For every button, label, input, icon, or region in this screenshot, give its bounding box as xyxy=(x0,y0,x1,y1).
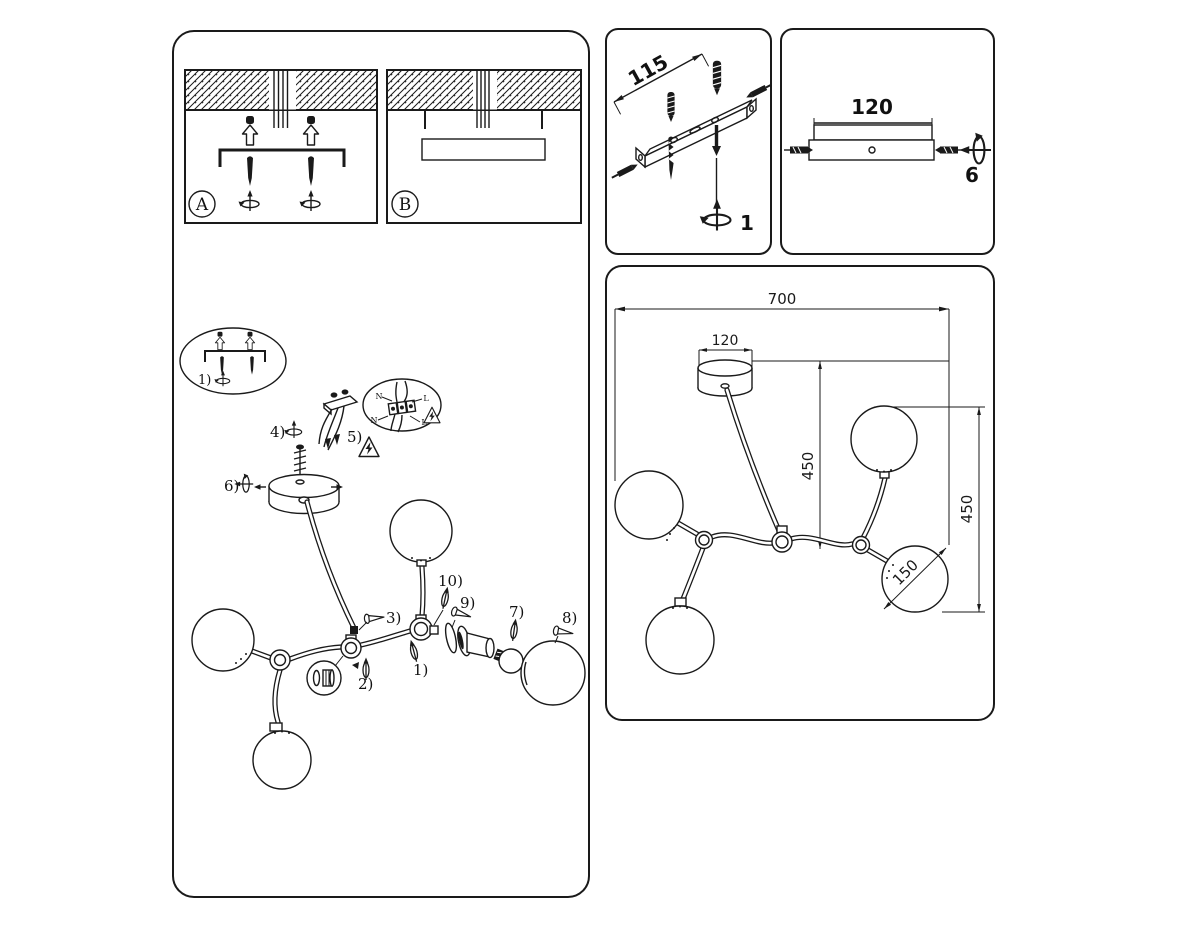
dimensions-drawing: 700 120 450 xyxy=(607,267,993,719)
screw-rotate-icon xyxy=(214,371,229,387)
screw-icon xyxy=(247,156,253,186)
detail-socket-insert xyxy=(307,656,343,695)
dim-120-label: 120 xyxy=(712,333,739,349)
screw-icon xyxy=(553,626,574,638)
wire xyxy=(391,414,395,431)
canopy-mounting-card: 120 xyxy=(780,28,995,255)
dim-450-right-label: 450 xyxy=(958,495,976,524)
bracket-drawing: 115 xyxy=(607,30,770,253)
mounting-bracket xyxy=(205,351,265,362)
bracket-mounting-card: 115 xyxy=(605,28,772,255)
screw-rotate-icon xyxy=(239,190,260,211)
neutral-label: N xyxy=(376,392,383,401)
dim-120-label: 120 xyxy=(851,95,893,119)
socket-disc xyxy=(443,622,458,653)
wall-plug-icon xyxy=(245,332,254,350)
dim-115-label: 115 xyxy=(624,50,672,91)
glass-globe xyxy=(646,606,714,674)
dimension-450-center: 450 xyxy=(799,361,822,549)
wall-plug-icon xyxy=(304,116,319,145)
canopy-side-view xyxy=(809,125,934,160)
screw-head-icon xyxy=(342,389,349,394)
side-screw xyxy=(745,82,770,100)
wall-plug-icon xyxy=(667,92,674,122)
screw-rotate-icon xyxy=(960,133,992,164)
step-1-label: 1) xyxy=(198,373,211,388)
wall-plug-icon xyxy=(215,332,224,350)
panel-a-label: A xyxy=(195,195,209,215)
live-label: L xyxy=(423,394,429,403)
step-10-label: 10) xyxy=(438,572,463,590)
dimension-115: 115 xyxy=(613,50,709,115)
panel-b-label: B xyxy=(399,195,412,215)
step-9-label: 9) xyxy=(460,594,475,612)
step-7-label: 7) xyxy=(509,603,524,621)
left-arrow xyxy=(254,484,261,489)
right-arrow xyxy=(337,484,344,489)
side-screw xyxy=(784,147,813,154)
step-1-label: 1 xyxy=(740,211,754,235)
wall-plug-icon xyxy=(713,61,721,96)
step-1-label: 1) xyxy=(413,661,428,679)
canopy-drawing: 120 xyxy=(782,30,993,253)
canopy-assembly: 6) xyxy=(224,445,343,514)
step-2-label: 2) xyxy=(358,675,373,693)
rotate-icon xyxy=(510,618,519,641)
panel-a-ceiling-mount: A xyxy=(185,70,377,223)
glass-globe xyxy=(851,406,917,472)
glass-globe xyxy=(192,609,254,671)
terminal-block xyxy=(388,400,415,415)
step-8-label: 8) xyxy=(562,609,577,627)
screw-icon xyxy=(364,612,384,623)
screw-rotate-icon xyxy=(284,420,301,438)
step-3-label: 3) xyxy=(386,609,401,627)
screw-icon xyxy=(308,156,314,186)
instruction-sheet-page: A B xyxy=(0,0,1200,933)
wire-bracket-part: 4) 5) xyxy=(270,389,379,456)
side-screw xyxy=(611,162,639,180)
detail-bracket-mounting: 1) xyxy=(180,328,286,394)
mounting-plate xyxy=(422,139,545,160)
step-4-label: 4) xyxy=(270,423,285,441)
globe-cap xyxy=(270,723,282,731)
socket-connector xyxy=(430,626,438,634)
dimensions-card: 700 120 450 xyxy=(605,265,995,721)
arm-end-fitting xyxy=(350,626,358,634)
neutral-label: N xyxy=(371,416,378,425)
canopy-top xyxy=(269,475,339,498)
panel-b-ceiling-mount: B xyxy=(387,70,581,223)
dim-700-label: 700 xyxy=(768,290,797,308)
connector-ring-center xyxy=(410,618,432,640)
light-bulb xyxy=(499,649,523,673)
rotate-icon xyxy=(408,639,420,662)
globe-cap xyxy=(675,598,686,606)
glass-globe xyxy=(253,731,311,789)
dim-450-center-label: 450 xyxy=(799,452,817,481)
wire xyxy=(396,382,397,402)
step-6-label: 6) xyxy=(224,477,239,495)
step-6-label: 6 xyxy=(965,163,979,187)
connector-ring-mid xyxy=(341,635,361,658)
step-5-label: 5) xyxy=(347,428,362,446)
wire-arrow xyxy=(334,434,340,445)
detail-wiring: N L N L xyxy=(363,379,441,432)
instructions-drawing: A B xyxy=(174,32,588,896)
screw-rotate-icon xyxy=(700,199,731,231)
installation-instructions-card: A B xyxy=(172,30,590,898)
screw-head-icon xyxy=(331,392,338,397)
left-arrow xyxy=(352,662,359,669)
screw-icon xyxy=(250,356,254,374)
glass-globe xyxy=(615,471,683,539)
mounting-bracket xyxy=(636,99,756,167)
mounting-bracket xyxy=(220,150,344,167)
screw-rotate-icon xyxy=(300,190,321,211)
connector-ring-left xyxy=(270,650,290,670)
glass-globe xyxy=(521,641,585,705)
wall-plug-icon xyxy=(243,116,258,145)
connector-rings xyxy=(696,526,870,554)
screw-with-rotation xyxy=(700,125,731,231)
glass-globe xyxy=(390,500,452,562)
wire xyxy=(403,381,407,403)
wire xyxy=(398,415,402,432)
